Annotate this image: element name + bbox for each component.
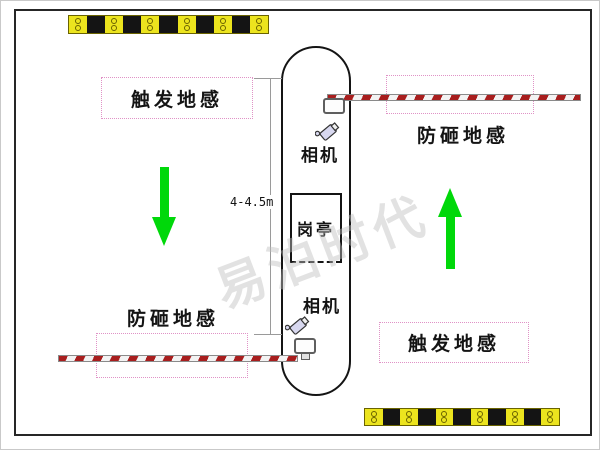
arrow-shaft — [160, 167, 169, 217]
loop-antismash-top-right-label: 防砸地感 — [398, 121, 528, 148]
barrier-gate-foot — [301, 353, 310, 360]
loop-trigger-top-left-label: 触发地感 — [131, 85, 223, 112]
guard-booth: 岗亭 — [290, 193, 342, 263]
loop-trigger-top-left: 触发地感 — [101, 77, 253, 119]
dimension-tick-top — [254, 78, 282, 79]
barrier-arm-bottom — [58, 355, 298, 362]
arrow-shaft — [446, 217, 455, 269]
camera-label-bottom: 相机 — [296, 292, 348, 317]
arrow-head — [438, 188, 462, 217]
camera-label-top: 相机 — [294, 141, 346, 166]
arrow-up-icon — [438, 188, 462, 269]
loop-trigger-bottom-right-label: 触发地感 — [408, 329, 500, 356]
arrow-down-icon — [152, 167, 176, 246]
speed-bump-icon — [364, 408, 560, 426]
speed-bump-icon — [68, 15, 269, 34]
barrier-gate-icon-top — [323, 98, 345, 114]
arrow-head — [152, 217, 176, 246]
loop-antismash-bottom-left-label: 防砸地感 — [108, 304, 238, 331]
dimension-label: 4-4.5m — [227, 195, 276, 209]
barrier-arm-top — [327, 94, 581, 101]
loop-trigger-bottom-right: 触发地感 — [379, 322, 529, 363]
dimension-tick-bottom — [254, 334, 282, 335]
parking-gate-layout-diagram: 触发地感 防砸地感 防砸地感 触发地感 4-4.5m 岗亭 相 — [0, 0, 600, 450]
